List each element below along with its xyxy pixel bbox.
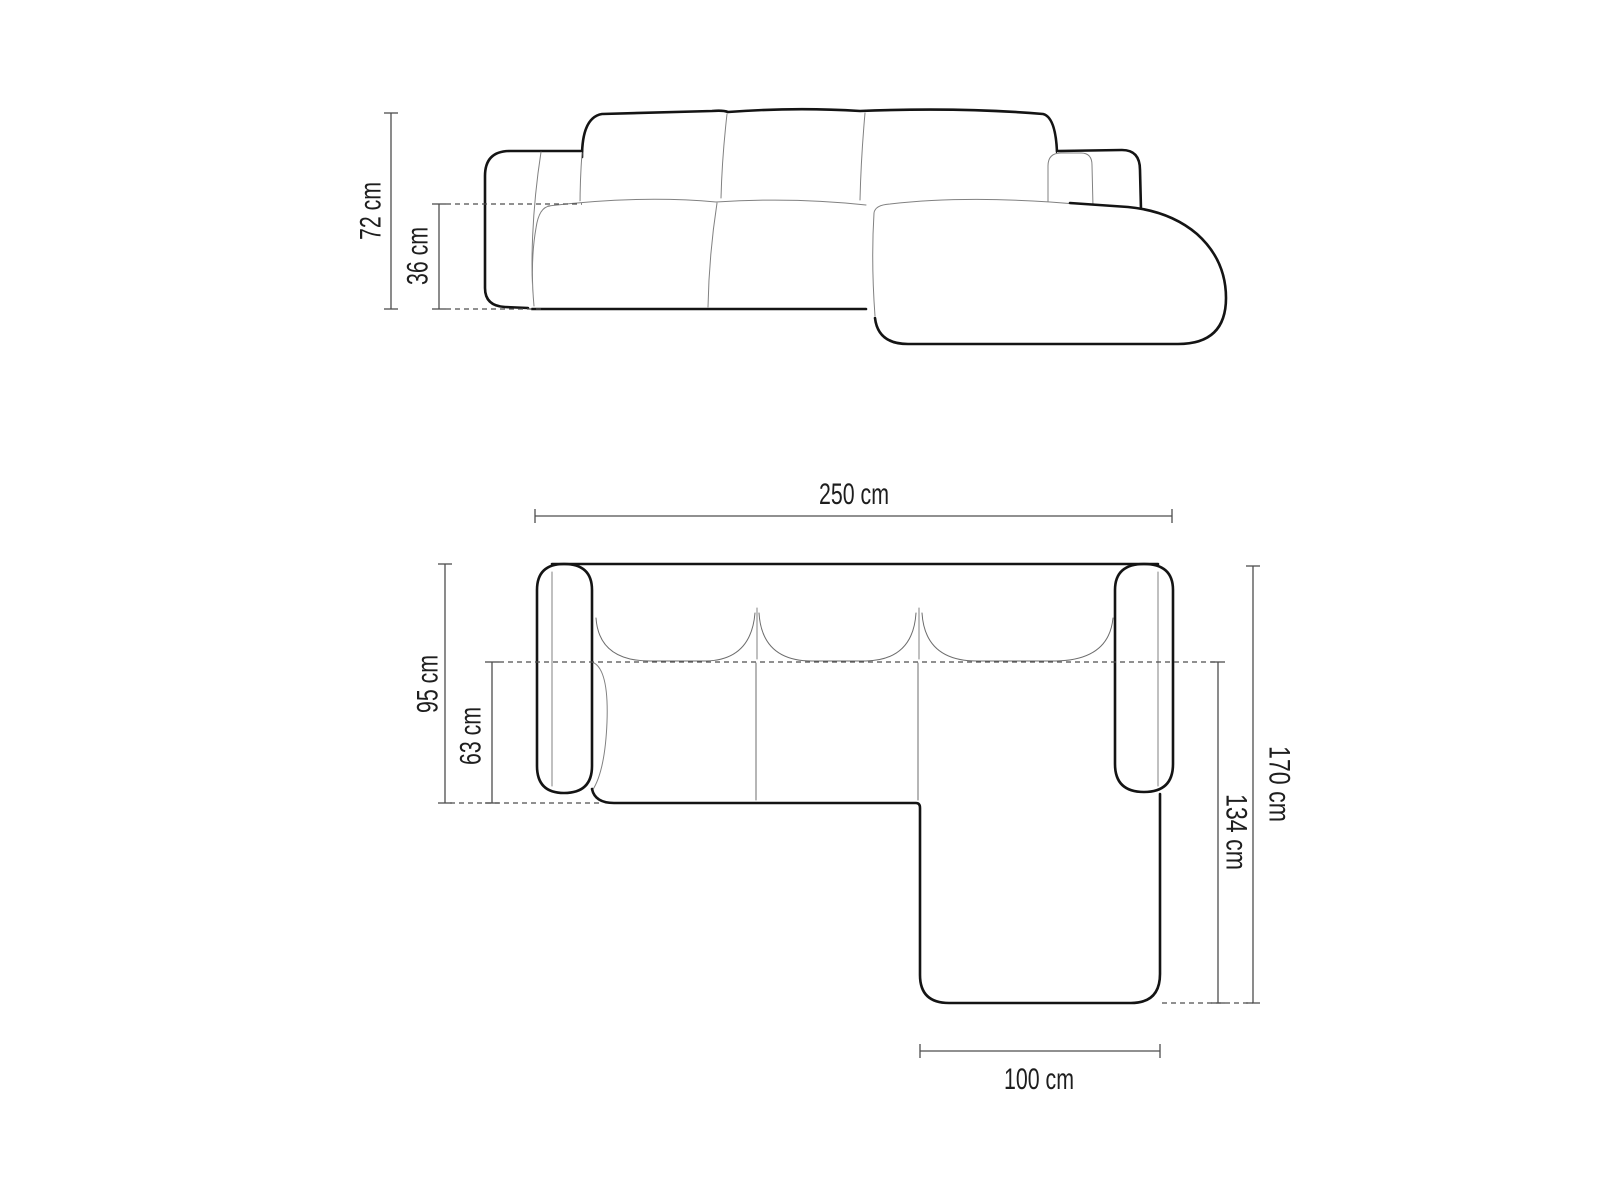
dim-front-total-height: 72 cm (355, 113, 399, 309)
dim-100-label: 100 cm (1004, 1063, 1074, 1096)
dim-top-total-depth: 95 cm (412, 564, 453, 803)
dim-250-label: 250 cm (819, 478, 889, 511)
front-seat-fill (532, 199, 868, 309)
top-left-armrest-fill (537, 564, 592, 793)
top-right-armrest-fill (1115, 564, 1173, 792)
front-chaise (873, 199, 1226, 344)
dim-134-label: 134 cm (1220, 794, 1253, 870)
front-chaise-fill (873, 199, 1226, 344)
top-view: 250 cm 95 cm 63 cm 170 cm 1 (412, 478, 1296, 1096)
dim-top-chaise-width: 100 cm (920, 1044, 1160, 1096)
dim-170-label: 170 cm (1263, 746, 1296, 822)
dim-72-label: 72 cm (355, 182, 388, 240)
front-seat (532, 199, 868, 309)
dim-63-label: 63 cm (455, 707, 488, 765)
dim-top-chaise-outer-length: 170 cm (1246, 566, 1296, 1003)
dim-top-total-width: 250 cm (535, 478, 1172, 523)
dim-95-label: 95 cm (412, 655, 445, 713)
diagram-svg: 72 cm 36 cm (0, 0, 1600, 1200)
front-view: 72 cm 36 cm (355, 109, 1227, 344)
top-right-armrest (1115, 564, 1173, 792)
dim-top-chaise-inner-length: 134 cm (1162, 662, 1253, 1003)
dim-36-label: 36 cm (402, 227, 435, 285)
sofa-dimension-diagram: 72 cm 36 cm (0, 0, 1600, 1200)
